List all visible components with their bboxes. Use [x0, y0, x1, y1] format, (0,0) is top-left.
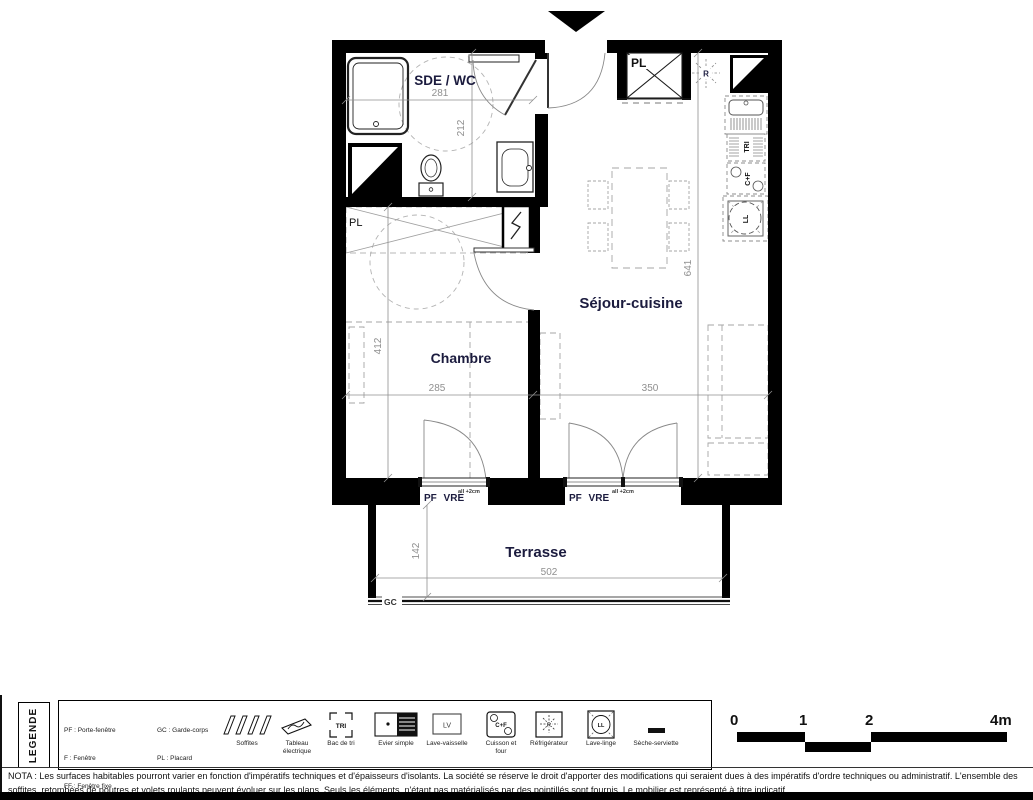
refrigerateur-glyph: R — [547, 723, 551, 729]
lave-linge-icon: LL — [588, 711, 614, 738]
icon-label-refrigerateur: Réfrigérateur — [519, 740, 579, 748]
cf-tag: C+F — [745, 172, 752, 186]
bottom-border-bar — [0, 792, 1033, 800]
sink-icon — [725, 96, 767, 134]
floor-plan-drawing: TRI C+F LL R — [0, 0, 1033, 695]
tableau-electrique-icon — [282, 719, 311, 734]
tri-tag: TRI — [744, 141, 751, 152]
icon-label-soffites: Soffites — [217, 740, 277, 748]
room-label-sde-wc: SDE / WC — [414, 73, 476, 88]
legend-abbrev: GC : Garde-corps — [157, 726, 208, 735]
scale-tick-1: 1 — [799, 712, 807, 729]
lave-linge-glyph: LL — [598, 723, 605, 729]
dim-412: 412 — [373, 337, 384, 354]
icon-label-cuisson: Cuisson et four — [484, 740, 518, 755]
dim-285: 285 — [429, 383, 446, 394]
win2-note: all +2cm — [612, 489, 634, 495]
icon-label-bac-de-tri: Bac de tri — [311, 740, 371, 748]
dim-281: 281 — [432, 88, 449, 99]
entrance-door — [548, 53, 605, 108]
floor-plan-page: TRI C+F LL R — [0, 0, 1033, 800]
entrance-marker-icon — [548, 11, 605, 32]
room-label-terrasse: Terrasse — [505, 544, 566, 561]
dim-641: 641 — [683, 259, 694, 276]
guard-rail — [368, 597, 730, 605]
cuisson-et-four-glyph: C+F — [495, 723, 507, 729]
scale-bar-segment-3 — [871, 732, 1007, 742]
legend-abbrev: PL : Placard — [157, 754, 208, 763]
legend-title: LEGENDE — [29, 707, 40, 762]
seche-serviette-icon — [648, 728, 665, 733]
shower-icon — [348, 58, 408, 134]
soffit-duct-top-right — [730, 55, 768, 93]
washing-machine-icon: LL — [723, 196, 768, 241]
dim-350: 350 — [642, 383, 659, 394]
cooktop-oven-icon: C+F — [727, 163, 765, 194]
dim-502: 502 — [541, 567, 558, 578]
scale-bar-segment-2 — [805, 742, 871, 752]
ll-tag: LL — [743, 214, 750, 223]
towel-dryer-icon — [469, 55, 519, 62]
sofa — [708, 325, 768, 475]
fridge-icon: R — [692, 59, 720, 88]
soffites-icon — [224, 716, 271, 734]
gc-label: GC — [384, 597, 397, 607]
refrigerateur-icon: R — [536, 712, 562, 737]
scale-tick-0: 0 — [730, 712, 738, 729]
lave-vaisselle-glyph: LV — [443, 723, 451, 730]
room-label-chambre: Chambre — [431, 350, 492, 366]
waste-sorting-icon: TRI — [727, 134, 765, 161]
pl-entry-label: PL — [631, 56, 646, 70]
walls — [332, 40, 782, 598]
pl-chambre-label: PL — [349, 217, 362, 229]
electrical-panel-closet — [503, 206, 530, 250]
icon-label-lave-vaisselle: Lave-vaisselle — [417, 740, 477, 748]
chambre-door — [474, 248, 534, 310]
sde-door — [473, 60, 536, 115]
legend-abbrev: F : Fenêtre — [64, 754, 149, 763]
win2-label: PF VRE — [569, 493, 609, 504]
legend-title-box: LEGENDE — [18, 702, 50, 768]
separator-line — [0, 767, 1033, 768]
dim-142: 142 — [411, 542, 422, 559]
icon-label-seche-serviette: Sèche-serviette — [626, 740, 686, 748]
toilet-icon — [419, 155, 443, 196]
tv-cabinet — [540, 333, 560, 419]
dining-table — [588, 168, 689, 268]
icon-label-lave-linge: Lave-linge — [571, 740, 631, 748]
placard-chambre — [346, 207, 528, 253]
soffit-duct-sde — [348, 143, 402, 199]
bac-de-tri-glyph: TRI — [336, 723, 347, 730]
scale-tick-2: 2 — [865, 712, 873, 729]
page-edge-line — [0, 695, 2, 800]
win1-note: all +2cm — [458, 489, 480, 495]
evier-simple-icon — [375, 713, 417, 736]
legend-abbrev: PF : Porte-fenêtre — [64, 726, 149, 735]
fridge-tag: R — [703, 70, 709, 79]
dim-212: 212 — [456, 119, 467, 136]
scale-tick-4m: 4m — [990, 712, 1012, 729]
washbasin-icon — [497, 142, 533, 192]
scale-bar-segment-1 — [737, 732, 805, 742]
room-label-sejour: Séjour-cuisine — [579, 295, 682, 312]
